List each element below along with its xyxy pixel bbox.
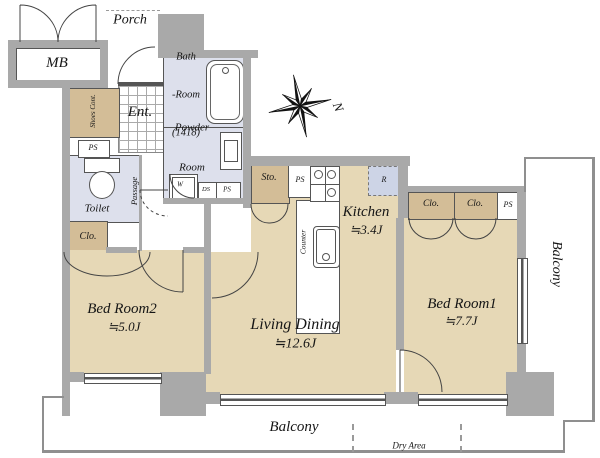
wall-toilet-right [139,155,142,251]
shoes-cabinet-label: Shoes Cont. [89,94,97,127]
wall-living-bed1-divider [396,218,404,350]
wall-mb-bottom [8,80,108,88]
kitchen-size-label: ≒3.4J [350,222,383,238]
kitchen-sink [313,226,340,268]
powder-room-label-line2: Room [175,161,209,174]
wall-right-upper [517,192,526,260]
wall-bed1-top [404,186,526,192]
railing-top-connector [524,157,526,192]
wall-kitchen-top [243,156,410,166]
kitchen-sink-drain [322,253,330,261]
balcony-bottom-label: Balcony [269,418,318,436]
front-door-sill [118,82,164,86]
closet2-label: Clo. [467,199,483,211]
wall-living-bottom-mid-stub [384,392,418,404]
dry-area-divider-2 [460,424,462,452]
bed1-label: Bed Room1 [427,295,497,313]
powder-pipe-space-label: PS [223,186,231,195]
window-bed1-south [418,394,508,406]
burner-3 [327,188,336,197]
window-bed1-east [517,258,528,344]
counter-label: Counter [299,230,308,255]
window-living-south [220,394,386,406]
wall-mb-top [8,40,108,48]
wall-bath-right [243,50,251,208]
wall-left [62,86,70,416]
burner-2 [327,170,336,179]
wall-bed2-living-divider [204,250,211,374]
railing-balcony-top [526,157,592,159]
railing-step-v [563,420,565,452]
passage-label: Passage [129,177,139,205]
north-label: N [329,100,347,114]
compass-icon [266,72,334,140]
washer-label: W [177,181,183,190]
bathtub-drain [222,67,229,74]
toilet-pipe-space-label: PS [89,143,98,153]
kitchen-label: Kitchen [343,203,390,221]
bathtub [206,60,244,124]
stove-top [310,166,340,202]
bed2-size-label: ≒5.0J [108,319,141,335]
closet-toilet-label: Clo. [80,231,97,243]
powder-sink-basin [224,140,238,162]
dry-area-divider-1 [352,424,354,452]
toilet-label: Toilet [85,202,110,215]
powder-room-label-line1: Powder [175,121,209,134]
mb-door-right-arc [58,5,96,42]
duct-space-label: DS [202,186,210,194]
porch-label: Porch [113,11,147,28]
mb-door-left-arc [20,5,58,42]
bed1-size-label: ≒7.7J [445,313,478,329]
toilet-bowl [89,171,115,199]
railing-step-h [563,420,595,422]
wall-bed2-top-1 [106,247,137,253]
bed2-label: Bed Room2 [87,300,157,318]
floor-plan: MB Porch Ent. Shoes Cont. Bath -Room (14… [0,0,600,458]
wall-mb-right [100,40,108,88]
wall-bed2-bottom-stub [62,372,84,382]
bath-room-label-line1: Bath [172,51,200,64]
living-size-label: ≒12.6J [274,335,316,352]
bed1-pipe-space-label: PS [504,200,513,210]
ent-label: Ent. [128,103,153,121]
railing-balcony-right [592,157,595,422]
railing-left-connector [42,396,64,398]
refrigerator-label: R [382,175,387,185]
wall-passage-living-divider [204,204,211,252]
railing-balcony-left [42,396,44,453]
window-bed2-south [84,373,162,384]
balcony-right-label: Balcony [548,241,564,287]
pillar-bottom-right [506,372,554,416]
railing-balcony-bottom [42,450,565,453]
living-label: Living Dining [250,315,339,335]
wall-bed2-top-2 [183,247,204,253]
kitchen-pipe-space-label: PS [296,175,305,185]
powder-sink [220,132,242,170]
dry-area-label: Dry Area [392,441,425,452]
wall-living-bottom-left-stub [204,392,220,404]
closet1-label: Clo. [423,199,439,211]
burner-1 [314,170,323,179]
wall-right-lower [517,340,526,374]
storage-label: Sto. [261,172,276,184]
front-door-arc [118,47,155,84]
mb-label: MB [46,54,68,72]
pillar-bottom-left [160,372,206,416]
